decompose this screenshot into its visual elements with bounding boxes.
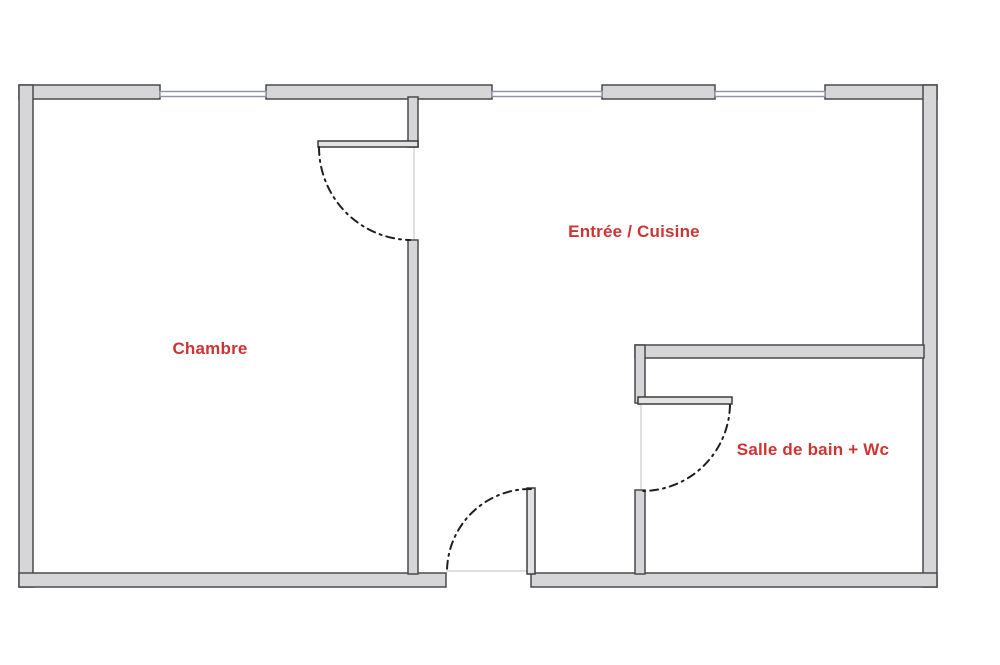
entrance-door-arc — [447, 489, 531, 571]
bathroom-top-wall — [635, 345, 924, 358]
top-wall-segment-4 — [825, 85, 937, 99]
chambre-door-leaf — [318, 141, 418, 147]
bottom-wall-right — [531, 573, 937, 587]
bathroom-door-leaf — [638, 397, 732, 404]
room-label-salle-de-bain-wc: Salle de bain + Wc — [737, 440, 889, 460]
right-wall — [923, 85, 937, 587]
room-label-entree-cuisine: Entrée / Cuisine — [568, 222, 700, 242]
entrance-door-leaf — [527, 488, 535, 574]
left-wall — [19, 85, 33, 587]
bathroom-left-wall-lower — [635, 490, 645, 574]
top-wall-segment-1 — [19, 85, 160, 99]
window-2 — [492, 92, 602, 97]
floor-plan-drawing — [0, 0, 1000, 665]
room-label-chambre: Chambre — [172, 339, 247, 359]
divider-wall-upper — [408, 97, 418, 147]
chambre-door-arc — [319, 147, 410, 240]
bathroom-door-arc — [640, 405, 730, 491]
window-1 — [160, 92, 266, 97]
window-3 — [715, 92, 825, 97]
top-wall-segment-3 — [602, 85, 715, 99]
bottom-wall-left — [19, 573, 446, 587]
divider-wall-lower — [408, 240, 418, 574]
floor-plan: Chambre Entrée / Cuisine Salle de bain +… — [0, 0, 1000, 665]
bathroom-left-wall-upper — [635, 345, 645, 403]
top-wall-segment-2 — [266, 85, 492, 99]
